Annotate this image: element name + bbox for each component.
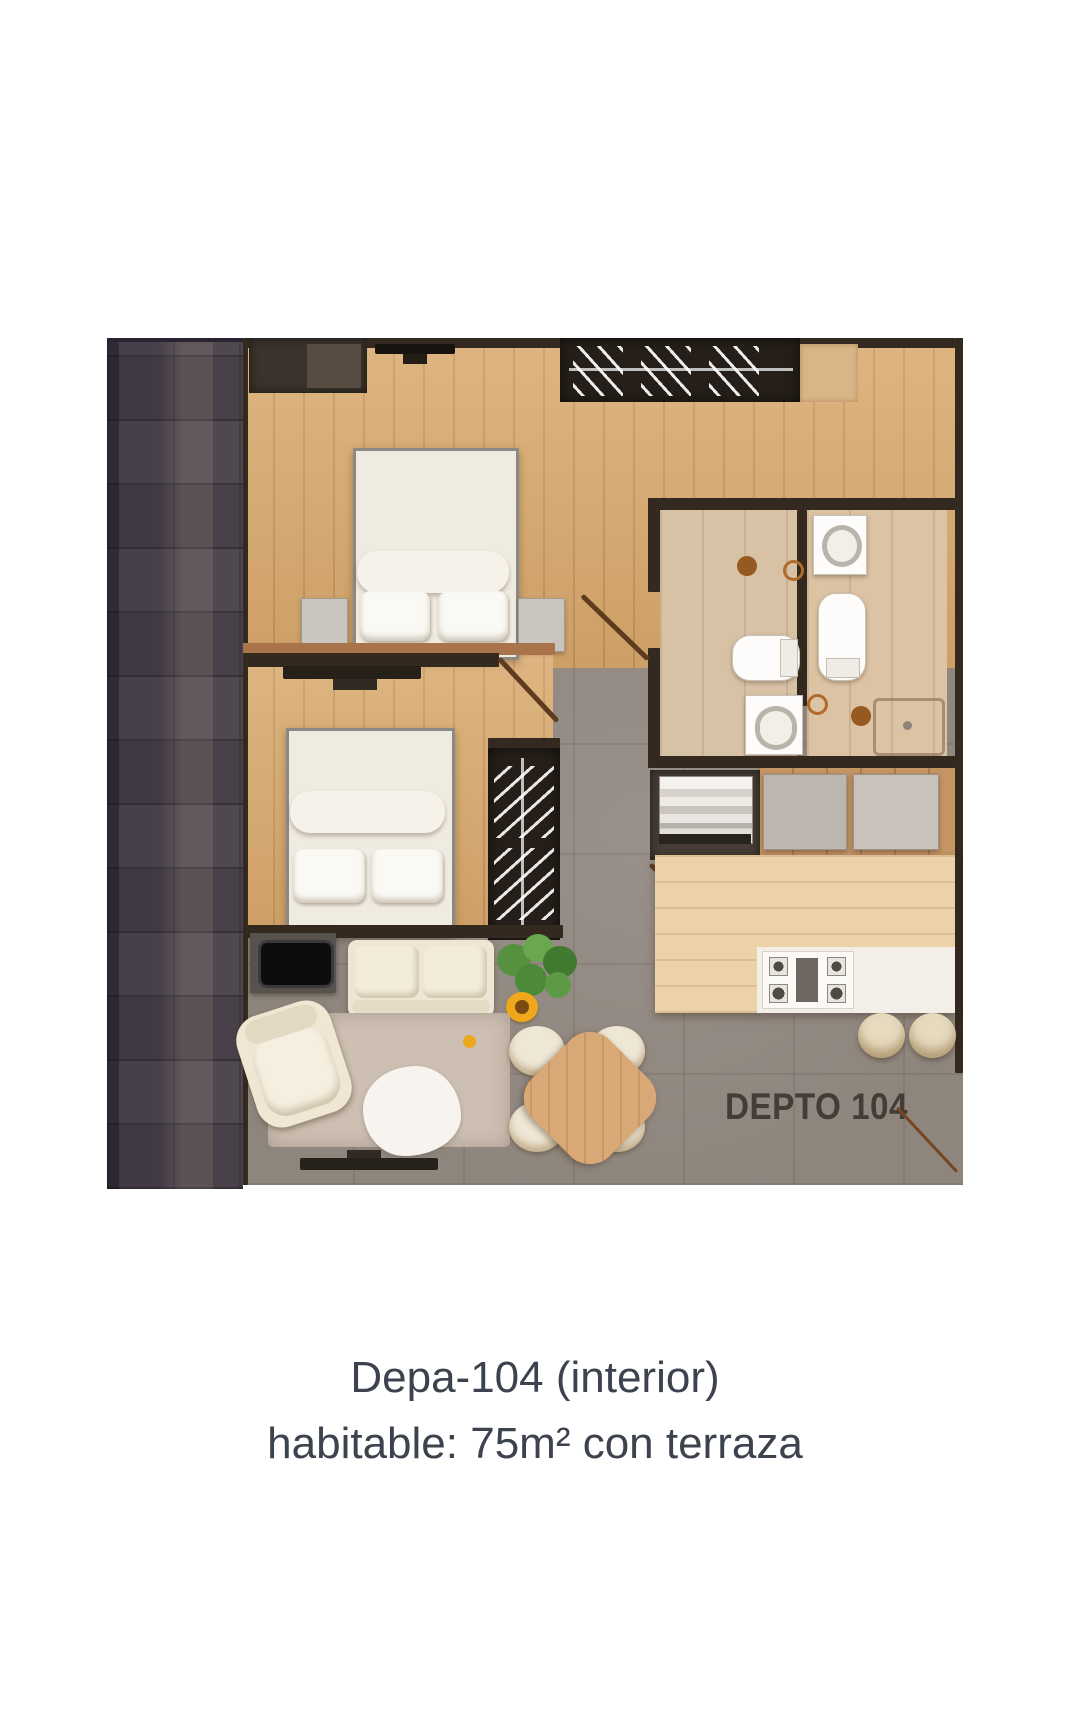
door-hinge bbox=[783, 560, 804, 581]
duvet-fold bbox=[290, 791, 445, 833]
bathroom-top-wall bbox=[648, 498, 955, 510]
stove-burners-icon bbox=[762, 951, 854, 1009]
bedroom1-wardrobe bbox=[249, 338, 367, 393]
sink-bowl bbox=[755, 706, 797, 750]
tv-mount-icon bbox=[375, 344, 455, 354]
sofa-cushion bbox=[423, 946, 487, 998]
terrace-wall bbox=[107, 338, 243, 1189]
toilet-tank bbox=[826, 658, 860, 678]
tv-icon bbox=[283, 666, 421, 679]
sofa-front bbox=[352, 1000, 490, 1013]
tv-console bbox=[250, 933, 336, 993]
hanger-rack-icon bbox=[494, 848, 554, 920]
bar-stool-icon bbox=[909, 1013, 956, 1058]
wardrobe-shelf bbox=[307, 344, 361, 388]
sheepskin-icon bbox=[363, 1066, 461, 1156]
unit-label: DEPTO 104 bbox=[725, 1086, 908, 1128]
bar-stool-icon bbox=[858, 1013, 905, 1058]
sink-icon bbox=[813, 515, 867, 575]
burner bbox=[827, 984, 846, 1003]
hanger-rack-icon bbox=[573, 346, 623, 396]
appliance-counter bbox=[853, 774, 939, 850]
door-handle bbox=[737, 556, 757, 576]
pillow bbox=[360, 591, 430, 641]
caption-line-1: Depa-104 (interior) bbox=[0, 1345, 1070, 1411]
burner bbox=[827, 957, 846, 976]
entry-closet bbox=[560, 338, 800, 402]
washer-base bbox=[659, 834, 751, 844]
tv-mount-bracket bbox=[403, 354, 427, 364]
bathroom-left-wall-lower bbox=[648, 648, 660, 768]
bed-2 bbox=[286, 728, 455, 938]
image-caption: Depa-104 (interior) habitable: 75m² con … bbox=[0, 1345, 1070, 1477]
shower-tray-icon bbox=[873, 698, 945, 756]
bedroom2-closet bbox=[488, 748, 560, 940]
media-shelf bbox=[300, 1158, 438, 1170]
door-handle bbox=[851, 706, 871, 726]
decor-dot bbox=[463, 1035, 476, 1048]
sink-icon bbox=[745, 695, 803, 755]
closet2-top-wall bbox=[488, 738, 560, 748]
bathroom-bottom-wall bbox=[648, 756, 955, 768]
tv-bracket bbox=[333, 679, 377, 690]
duvet-fold bbox=[357, 551, 509, 593]
sofa-icon bbox=[348, 940, 494, 1017]
hanger-rack-icon bbox=[709, 346, 759, 396]
burner bbox=[769, 984, 788, 1003]
sink-bowl bbox=[822, 525, 862, 567]
pillow bbox=[293, 849, 365, 903]
hanger-rack-icon bbox=[641, 346, 691, 396]
tv-icon bbox=[258, 940, 334, 988]
sofa-cushion bbox=[355, 946, 419, 998]
bedroom-divider-wall bbox=[243, 653, 499, 667]
hanger-rack-icon bbox=[494, 766, 554, 838]
laundry-closet bbox=[650, 770, 760, 860]
entry-shelf bbox=[800, 344, 858, 402]
shelf-bracket bbox=[347, 1150, 381, 1158]
toilet-icon bbox=[818, 593, 866, 681]
listing-page: DEPTO 104 bbox=[0, 0, 1070, 1720]
burner bbox=[769, 957, 788, 976]
sunflower-icon bbox=[504, 990, 546, 1024]
shower-drain bbox=[903, 721, 912, 730]
pillow bbox=[438, 591, 508, 641]
bathroom-divider-wall bbox=[797, 510, 807, 706]
right-wall bbox=[955, 338, 963, 1073]
stove-center bbox=[796, 958, 818, 1002]
toilet-icon bbox=[732, 635, 800, 681]
bed-1 bbox=[353, 448, 519, 660]
kitchen-island-icon bbox=[655, 855, 955, 1013]
bathroom-left-wall-upper bbox=[648, 498, 660, 592]
floor-plan-image: DEPTO 104 bbox=[107, 338, 963, 1185]
door-hinge bbox=[807, 694, 828, 715]
caption-line-2: habitable: 75m² con terraza bbox=[0, 1411, 1070, 1477]
pillow bbox=[371, 849, 443, 903]
fridge-icon bbox=[763, 774, 847, 850]
toilet-tank bbox=[780, 639, 798, 677]
